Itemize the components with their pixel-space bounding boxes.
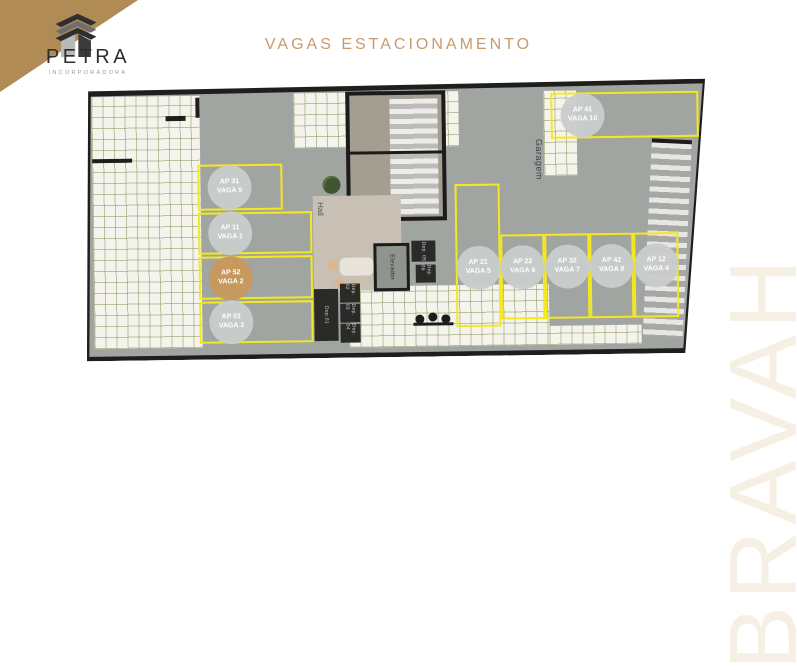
spot-ap: AP 22 [513,258,532,267]
parking-stall-vaga-1: AP 11 VAGA 1 [198,211,313,255]
spot-badge: AP 22 VAGA 6 [500,245,545,290]
storage-label: Dep. 02 [344,284,356,303]
storage-label: Dep. 06 [420,265,432,283]
parking-stall-vaga-7: AP 32 VAGA 7 [544,233,590,319]
page-title: VAGAS ESTACIONAMENTO [0,36,797,54]
brand-subtitle: INCORPORADORA [34,70,142,76]
storage-room-04: Dep. 04 [340,324,360,343]
tile-area-left [91,96,203,349]
spot-ap: AP 21 [468,259,487,268]
storage-room-02: Dep. 02 [340,284,360,303]
spot-badge: AP 42 VAGA 8 [589,244,634,289]
spot-badge: AP 32 VAGA 7 [545,244,590,289]
parking-stall-vaga-3: AP 51 VAGA 3 [199,300,314,344]
spot-badge-highlighted: AP 52 VAGA 2 [208,256,253,301]
storage-label: Dep. 03 [344,304,356,323]
wall-stub [92,159,132,164]
spot-vaga: VAGA 1 [218,233,243,242]
tile-area-bottomright [549,325,641,345]
parking-stall-vaga-9: AP 31 VAGA 9 [197,164,283,211]
elevator: Elevador [373,243,410,291]
storage-room-01: Dep.01 [314,289,339,341]
wall-stub [195,98,199,118]
parking-stall-vaga-10: AP 41 VAGA 10 [550,91,699,139]
spot-vaga: VAGA 6 [510,267,535,276]
spot-badge: AP 51 VAGA 3 [209,300,254,345]
spot-badge: AP 12 VAGA 4 [634,243,679,288]
spot-vaga: VAGA 7 [555,266,580,275]
parking-stall-vaga-8: AP 42 VAGA 8 [589,233,634,319]
page: { "brand": {"name": "PETRA", "subtitle":… [0,0,797,445]
spot-ap: AP 52 [221,269,240,278]
elevator-label: Elevador [388,254,394,280]
parking-stall-vaga-4: AP 12 VAGA 4 [633,232,679,318]
storage-room-03: Dep. 03 [340,304,360,323]
spot-vaga: VAGA 4 [644,265,669,274]
bike-rack [413,322,453,326]
spot-ap: AP 31 [220,178,239,187]
storage-room-05: Dep. 05 [411,240,435,261]
spot-badge: AP 11 VAGA 1 [208,211,253,256]
bicycle [428,312,437,321]
spot-badge: AP 21 VAGA 5 [456,246,501,291]
bravah-watermark: BRAVAH [723,70,797,670]
hall-label: Hall [316,202,325,216]
parking-stall-vaga-5: AP 21 VAGA 5 [455,184,502,328]
spot-ap: AP 32 [557,258,576,267]
spot-ap: AP 11 [221,224,240,233]
spot-ap: AP 41 [573,107,592,116]
spot-vaga: VAGA 3 [219,322,244,331]
spot-ap: AP 42 [602,257,621,266]
garage-label: Garagem [534,139,545,180]
spot-badge: AP 41 VAGA 10 [560,93,605,138]
spot-vaga: VAGA 10 [568,115,597,124]
parking-stall-vaga-6: AP 22 VAGA 6 [500,234,545,320]
storage-room-06: Dep. 06 [416,264,436,282]
storage-label: Dep.01 [323,306,329,324]
spot-vaga: VAGA 5 [466,268,491,277]
spot-ap: AP 12 [646,256,665,265]
wall-stub [166,116,186,121]
spot-vaga: VAGA 9 [217,187,242,196]
storage-label: Dep. 04 [344,324,356,343]
storage-label: Dep. 05 [420,241,426,261]
hall-table [340,257,374,275]
spot-vaga: VAGA 2 [218,278,243,287]
floor-plan: Hall Elevador Dep.01 Dep. 02 Dep. 03 Dep… [83,79,709,362]
spot-badge: AP 31 VAGA 9 [207,165,252,210]
chair [328,260,339,271]
spot-vaga: VAGA 8 [599,266,624,275]
spot-ap: AP 51 [222,313,241,322]
parking-stall-vaga-2: AP 52 VAGA 2 [198,255,313,300]
